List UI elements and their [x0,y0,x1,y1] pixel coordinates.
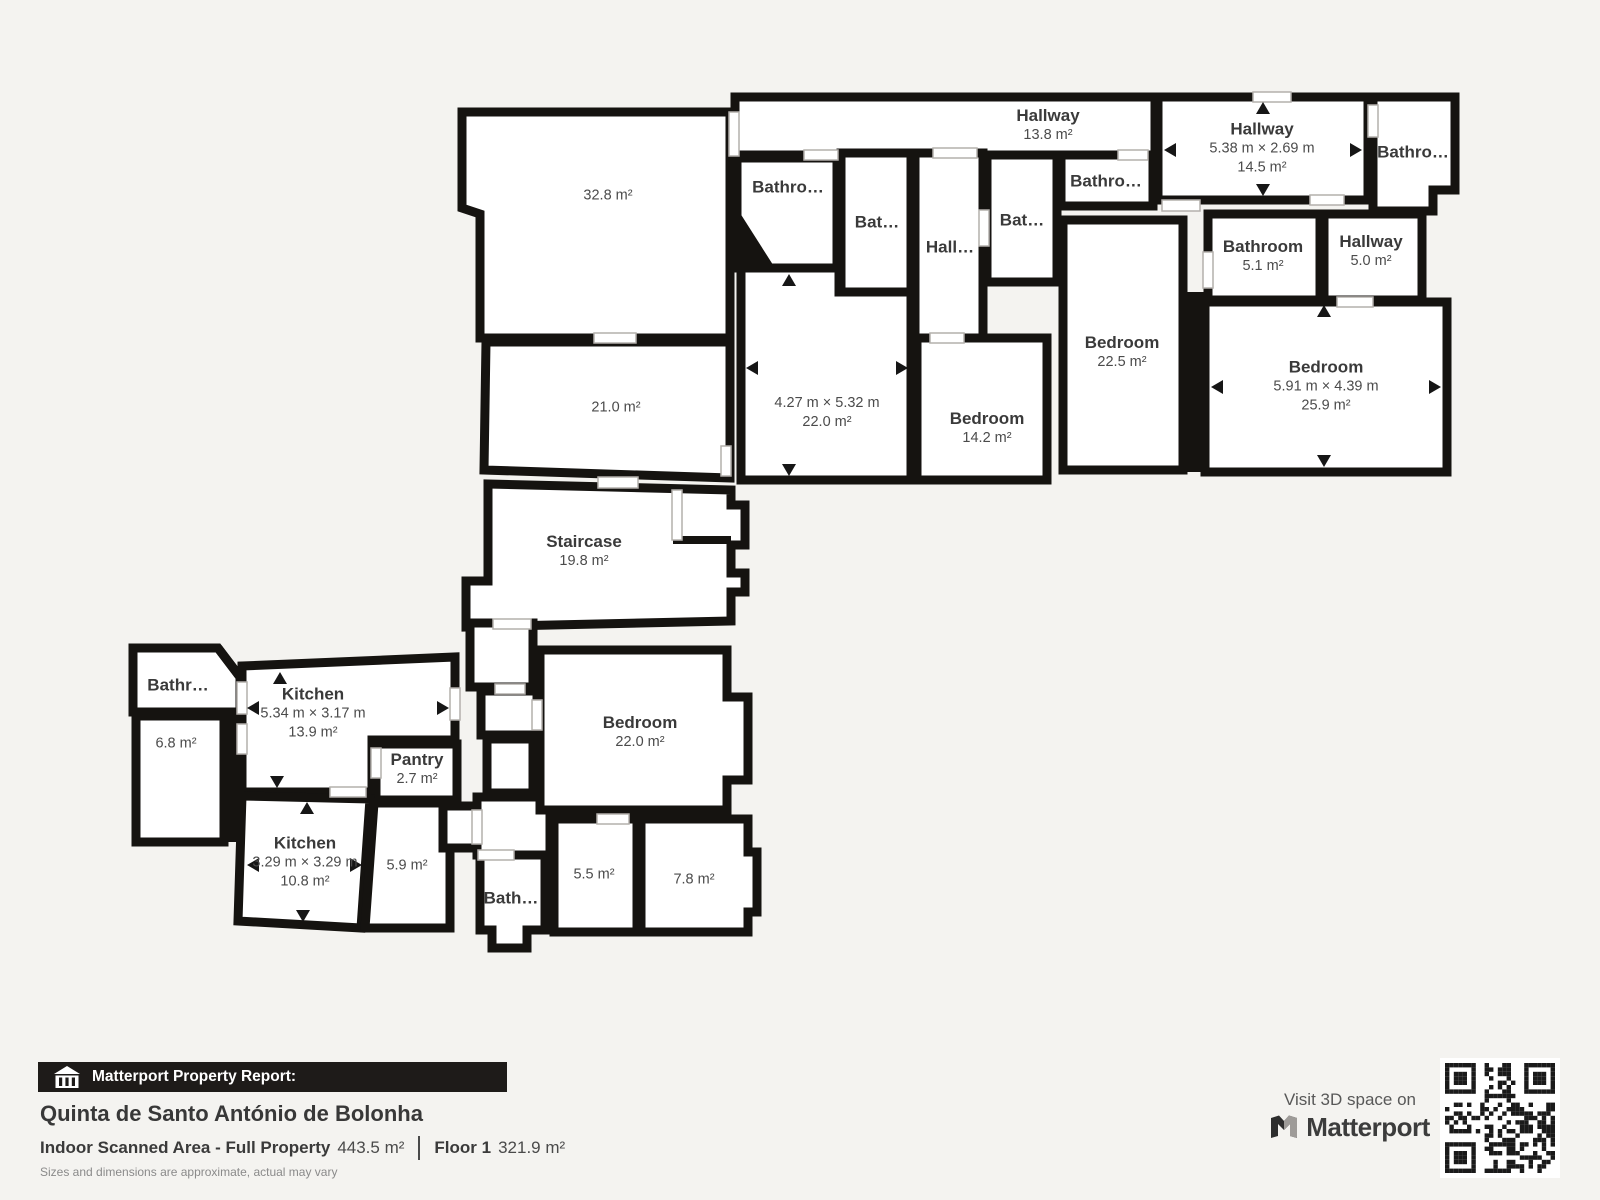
report-banner-label: Matterport Property Report: [92,1068,296,1086]
room-name: Staircase [546,531,622,552]
room-label-5-5: 5.5 m² [573,866,614,885]
room-label-kitchen-13-9: Kitchen 5.34 m × 3.17 m 13.9 m² [260,684,365,743]
thick-wall [1183,292,1209,472]
scanned-area-label: Indoor Scanned Area - Full Property [40,1138,330,1158]
room-name: Bathr… [147,675,208,696]
room-dims: 5.91 m × 4.39 m [1273,378,1378,397]
room-label-bathroom-ll: Bathr… [147,675,208,696]
room-label-bedroom-14-2: Bedroom 14.2 m² [950,408,1025,448]
area-stats: Indoor Scanned Area - Full Property 443.… [40,1136,565,1160]
room-area: 13.8 m² [1016,126,1079,145]
room-shape-vestibule-b [481,691,537,735]
room-shapes [133,97,1455,948]
room-label-bathroom-lower: Bath… [484,888,539,909]
room-area: 7.8 m² [673,871,714,890]
room-shape-hallway-13-8 [735,97,1155,155]
room-shape-32-8 [462,112,730,338]
room-name: Bathroom [1223,236,1303,257]
report-banner: Matterport Property Report: [38,1062,507,1092]
room-area: 22.0 m² [603,733,678,752]
room-area: 13.9 m² [260,724,365,743]
room-name: Bedroom [950,408,1025,429]
room-shape-22-0-upper [741,268,911,480]
property-title: Quinta de Santo António de Bolonha [40,1101,423,1127]
room-area: 21.0 m² [591,399,640,418]
room-area: 19.8 m² [546,552,622,571]
room-area: 10.8 m² [252,873,357,892]
room-name: Bedroom [1085,332,1160,353]
room-name: Pantry [391,749,444,770]
matterport-m-icon [1270,1115,1298,1141]
room-label-bedroom-25-9: Bedroom 5.91 m × 4.39 m 25.9 m² [1273,357,1378,416]
floor-label: Floor 1 [434,1138,491,1158]
room-shape-vestibule-a [470,623,533,687]
room-name: Hallway [1016,105,1079,126]
room-label-staircase: Staircase 19.8 m² [546,531,622,571]
room-area: 2.7 m² [391,770,444,789]
room-label-bathroom-mid4: Bathro… [1070,171,1142,192]
room-name: Bathro… [752,177,824,198]
room-name: Kitchen [252,833,357,854]
room-label-bedroom-22-0-lower: Bedroom 22.0 m² [603,712,678,752]
room-label-kitchen-10-8: Kitchen 3.29 m × 3.29 m 10.8 m² [252,833,357,892]
room-area: 5.9 m² [386,857,427,876]
room-area: 14.5 m² [1209,159,1314,178]
room-label-hall-mid: Hall… [926,237,974,258]
room-label-5-9: 5.9 m² [386,857,427,876]
room-area: 5.0 m² [1339,252,1402,271]
room-dims: 4.27 m × 5.32 m [774,394,879,413]
stats-divider [418,1136,420,1160]
room-dims: 3.29 m × 3.29 m [252,854,357,873]
room-name: Hallway [1339,231,1402,252]
room-label-bathroom-5-1: Bathroom 5.1 m² [1223,236,1303,276]
room-label-bathroom-mid2: Bat… [855,212,899,233]
disclaimer-text: Sizes and dimensions are approximate, ac… [40,1165,337,1179]
room-name: Hallway [1209,119,1314,140]
room-name: Bat… [1000,210,1044,231]
room-label-hallway-5-0: Hallway 5.0 m² [1339,231,1402,271]
room-area: 22.0 m² [774,413,879,432]
room-label-32-8: 32.8 m² [583,187,632,206]
room-area: 25.9 m² [1273,397,1378,416]
visit-3d-label: Visit 3D space on [1240,1090,1460,1110]
scanned-area-value: 443.5 m² [337,1138,404,1158]
matterport-wordmark: Matterport [1306,1112,1430,1143]
floor-value: 321.9 m² [498,1138,565,1158]
room-area: 5.1 m² [1223,257,1303,276]
room-label-bedroom-22-5: Bedroom 22.5 m² [1085,332,1160,372]
qr-code-pattern [1440,1058,1560,1178]
room-dims: 5.34 m × 3.17 m [260,705,365,724]
room-name: Bedroom [1273,357,1378,378]
floorplan-page: Hallway 13.8 m² Hallway 5.38 m × 2.69 m … [0,0,1600,1200]
room-name: Bath… [484,888,539,909]
room-label-bathroom-mid1: Bathro… [752,177,824,198]
room-area: 6.8 m² [155,735,196,754]
room-label-bathroom-mid3: Bat… [1000,210,1044,231]
room-label-bathroom-topright: Bathro… [1377,142,1449,163]
room-name: Bathro… [1070,171,1142,192]
room-area: 5.5 m² [573,866,614,885]
room-name: Kitchen [260,684,365,705]
qr-code[interactable] [1440,1058,1560,1178]
room-label-7-8: 7.8 m² [673,871,714,890]
matterport-logo[interactable]: Matterport [1240,1112,1460,1143]
room-label-21-0: 21.0 m² [591,399,640,418]
room-label-hallway-14-5: Hallway 5.38 m × 2.69 m 14.5 m² [1209,119,1314,178]
room-area: 22.5 m² [1085,353,1160,372]
room-dims: 5.38 m × 2.69 m [1209,140,1314,159]
room-area: 14.2 m² [950,429,1025,448]
room-name: Bathro… [1377,142,1449,163]
room-area: 32.8 m² [583,187,632,206]
room-name: Hall… [926,237,974,258]
room-label-hallway-13-8: Hallway 13.8 m² [1016,105,1079,145]
house-icon [54,1066,80,1088]
room-shape-vestibule-c [487,739,533,793]
room-label-22-0-upper: 4.27 m × 5.32 m 22.0 m² [774,394,879,432]
room-name: Bat… [855,212,899,233]
room-name: Bedroom [603,712,678,733]
room-label-pantry: Pantry 2.7 m² [391,749,444,789]
room-label-6-8: 6.8 m² [155,735,196,754]
